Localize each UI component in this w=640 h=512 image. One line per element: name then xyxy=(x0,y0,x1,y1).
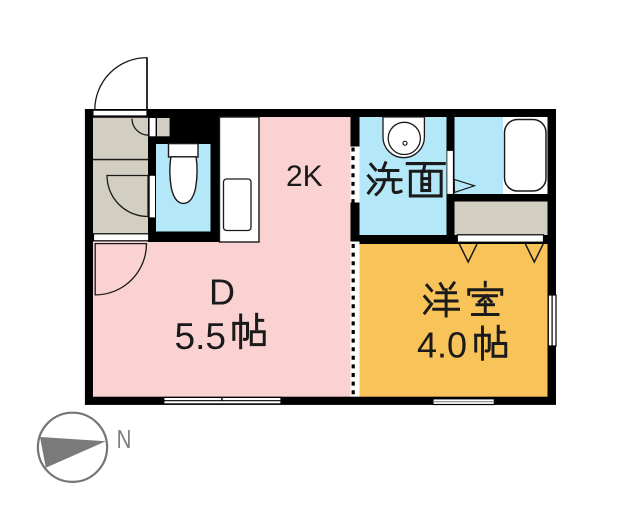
svg-text:N: N xyxy=(117,424,132,454)
svg-text:2K: 2K xyxy=(286,160,323,193)
svg-text:5.5: 5.5 xyxy=(175,316,226,357)
svg-text:4.0: 4.0 xyxy=(417,325,467,366)
svg-text:D: D xyxy=(209,272,235,313)
